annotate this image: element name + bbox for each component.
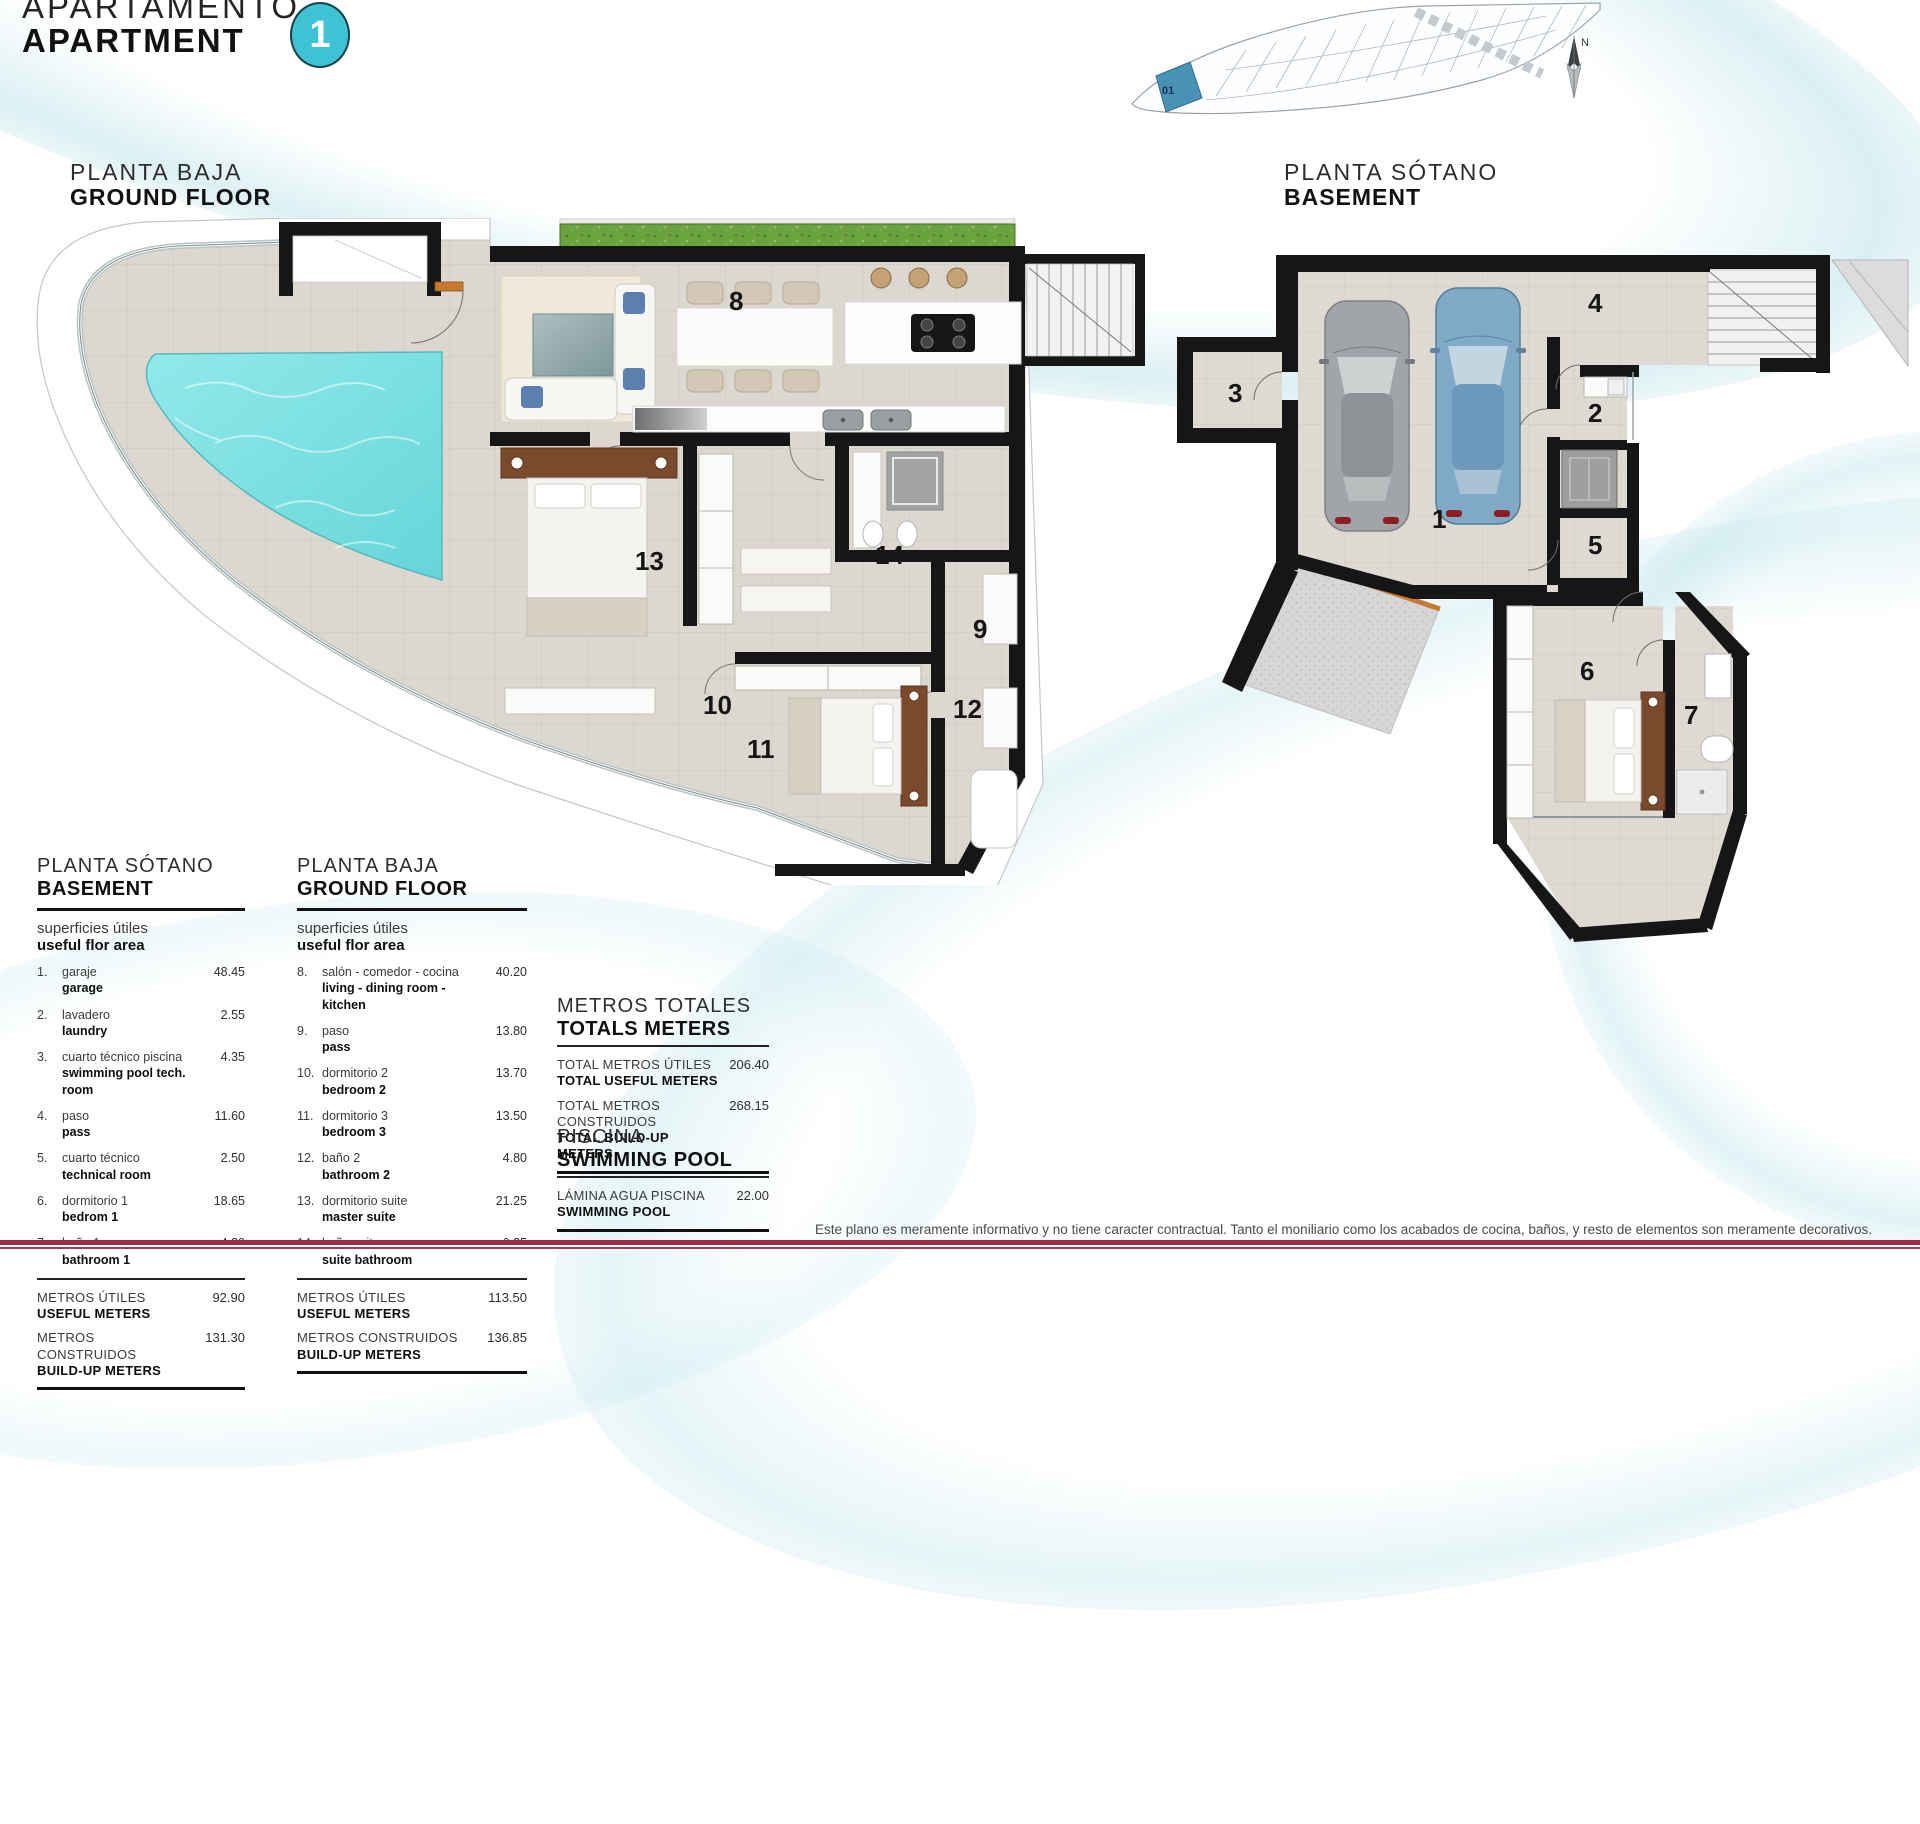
row-labels: baño 2 bathroom 2 <box>322 1150 481 1183</box>
counter-stools <box>871 268 967 288</box>
row-number: 2. <box>37 1007 62 1040</box>
bathtub <box>971 770 1017 848</box>
row-labels: cuarto técnico piscina swimming pool tec… <box>62 1049 199 1098</box>
row-labels: paso pass <box>322 1023 481 1056</box>
divider <box>37 1387 245 1390</box>
dining-furniture <box>677 282 833 392</box>
row-label-es: paso <box>62 1108 195 1124</box>
table-row: 12. baño 2 bathroom 2 4.80 <box>297 1150 527 1183</box>
row-label-en: living - dining room - kitchen <box>322 980 477 1013</box>
total-label-en: TOTAL USEFUL METERS <box>557 1073 721 1089</box>
room-number-7: 7 <box>1684 700 1698 730</box>
basement-table-title: PLANTA SÓTANO BASEMENT <box>37 855 245 901</box>
bed-blanket <box>789 698 821 794</box>
basement-label-es: PLANTA SÓTANO <box>1284 160 1498 185</box>
car-gray <box>1319 301 1415 531</box>
sink <box>1705 654 1731 698</box>
row-label-en: bedroom 2 <box>322 1082 477 1098</box>
grand-title-en: TOTALS METERS <box>557 1018 769 1041</box>
row-label-es: dormitorio suite <box>322 1193 477 1209</box>
room-number-5: 5 <box>1588 530 1602 560</box>
row-labels: dormitorio 3 bedroom 3 <box>322 1108 481 1141</box>
table-row: 6. dormitorio 1 bedrom 1 18.65 <box>37 1193 245 1226</box>
cooktop <box>911 314 975 352</box>
dining-table <box>677 308 833 366</box>
total-value: 92.90 <box>197 1290 245 1323</box>
row-value: 2.50 <box>199 1150 245 1183</box>
row-labels: lavadero laundry <box>62 1007 199 1040</box>
bed-headboard <box>901 686 927 806</box>
stairs <box>1027 264 1133 356</box>
room-number-11: 11 <box>747 734 775 764</box>
row-label-en: bedrom 1 <box>62 1209 195 1225</box>
row-label-es: paso <box>322 1023 477 1039</box>
row-number: 8. <box>297 964 322 1013</box>
total-label-es: METROS CONSTRUIDOS <box>297 1330 479 1346</box>
row-value: 11.60 <box>199 1108 245 1141</box>
basement-stairs <box>1708 260 1908 366</box>
total-value: 22.00 <box>721 1188 769 1221</box>
table-row: 13. dormitorio suite master suite 21.25 <box>297 1193 527 1226</box>
row-label-en: pass <box>62 1124 195 1140</box>
table-row: 9. paso pass 13.80 <box>297 1023 527 1056</box>
total-value: 113.50 <box>479 1290 527 1323</box>
total-label-en: BUILD-UP METERS <box>37 1363 197 1379</box>
total-labels: METROS CONSTRUIDOS BUILD-UP METERS <box>297 1330 479 1363</box>
room-number-6: 6 <box>1580 656 1594 686</box>
total-label-en: USEFUL METERS <box>297 1306 479 1322</box>
divider <box>297 1278 527 1280</box>
living-room-furniture <box>501 276 655 422</box>
row-label-en: swimming pool tech. room <box>62 1065 195 1098</box>
divider <box>557 1045 769 1047</box>
row-label-en: technical room <box>62 1167 195 1183</box>
row-value: 13.70 <box>481 1065 527 1098</box>
subtitle-es: superficies útiles <box>297 920 527 937</box>
subtitle-en: useful flor area <box>297 937 527 954</box>
total-row: METROS ÚTILES USEFUL METERS 92.90 <box>37 1290 245 1323</box>
ground-floor-label-es: PLANTA BAJA <box>70 160 271 185</box>
divider <box>37 1278 245 1280</box>
row-number: 9. <box>297 1023 322 1056</box>
total-labels: METROS CONSTRUIDOS BUILD-UP METERS <box>37 1330 197 1379</box>
row-label-en: bathroom 2 <box>322 1167 477 1183</box>
row-label-es: cuarto técnico piscina <box>62 1049 195 1065</box>
room-number-1: 1 <box>1432 504 1446 534</box>
row-number: 5. <box>37 1150 62 1183</box>
table-row: 11. dormitorio 3 bedroom 3 13.50 <box>297 1108 527 1141</box>
wardrobe <box>699 454 733 624</box>
pergola-strip <box>560 218 1015 224</box>
unit-number: 1 <box>309 14 330 57</box>
row-label-en: garage <box>62 980 195 996</box>
total-label-es: METROS ÚTILES <box>297 1290 479 1306</box>
row-value: 4.80 <box>481 1150 527 1183</box>
footer-rule <box>0 1240 1920 1249</box>
row-label-es: dormitorio 2 <box>322 1065 477 1081</box>
grand-totals-title: METROS TOTALES TOTALS METERS <box>557 995 769 1041</box>
row-number: 12. <box>297 1150 322 1183</box>
divider <box>557 1176 769 1178</box>
ground-table-title-en: GROUND FLOOR <box>297 878 527 901</box>
row-label-es: lavadero <box>62 1007 195 1023</box>
table-row: 3. cuarto técnico piscina swimming pool … <box>37 1049 245 1098</box>
basement-table-subtitle: superficies útiles useful flor area <box>37 920 245 954</box>
laundry-fixtures <box>1584 377 1627 397</box>
pillow <box>1614 708 1634 748</box>
north-arrow-icon: N <box>1567 36 1589 98</box>
title-spanish: APARTAMENTO <box>22 0 300 24</box>
basement-table-title-es: PLANTA SÓTANO <box>37 855 245 878</box>
row-value: 40.20 <box>481 964 527 1013</box>
row-number: 6. <box>37 1193 62 1226</box>
table-row: 8. salón - comedor - cocina living - din… <box>297 964 527 1013</box>
total-row: METROS ÚTILES USEFUL METERS 113.50 <box>297 1290 527 1323</box>
total-row: METROS CONSTRUIDOS BUILD-UP METERS 131.3… <box>37 1330 245 1379</box>
row-labels: garaje garage <box>62 964 199 997</box>
row-value: 13.50 <box>481 1108 527 1141</box>
pool-title-es: PISCINA <box>557 1126 769 1149</box>
row-labels: cuarto técnico technical room <box>62 1150 199 1183</box>
basement-area-table: PLANTA SÓTANO BASEMENT superficies útile… <box>37 855 245 1399</box>
row-label-es: baño 2 <box>322 1150 477 1166</box>
row-value: 21.25 <box>481 1193 527 1226</box>
svg-text:N: N <box>1581 37 1589 49</box>
row-label-en: suite bathroom <box>322 1252 477 1268</box>
counter-sideboard <box>635 408 707 430</box>
bed-blanket <box>527 598 647 636</box>
row-labels: salón - comedor - cocina living - dining… <box>322 964 481 1013</box>
pillow <box>873 704 893 742</box>
subtitle-en: useful flor area <box>37 937 245 954</box>
pillow <box>623 292 645 314</box>
basement-table-title-en: BASEMENT <box>37 878 245 901</box>
total-label-es: LÁMINA AGUA PISCINA <box>557 1188 721 1204</box>
pool-table-rows: LÁMINA AGUA PISCINA SWIMMING POOL 22.00 <box>557 1188 769 1221</box>
row-number: 11. <box>297 1108 322 1141</box>
row-label-en: pass <box>322 1039 477 1055</box>
row-label-en: bedroom 3 <box>322 1124 477 1140</box>
table-row: 5. cuarto técnico technical room 2.50 <box>37 1150 245 1183</box>
unit-number-badge: 1 <box>290 2 350 68</box>
room-number-4: 4 <box>1588 288 1603 318</box>
tv-panel <box>533 314 613 376</box>
row-labels: dormitorio 1 bedrom 1 <box>62 1193 199 1226</box>
total-label-es: TOTAL METROS ÚTILES <box>557 1057 721 1073</box>
row-value: 2.55 <box>199 1007 245 1040</box>
row-labels: dormitorio suite master suite <box>322 1193 481 1226</box>
total-value: 206.40 <box>721 1057 769 1090</box>
ground-floor-plan: 8 9 10 11 12 13 14 <box>35 218 1150 890</box>
divider <box>557 1229 769 1232</box>
shower <box>887 452 943 510</box>
total-labels: METROS ÚTILES USEFUL METERS <box>37 1290 197 1323</box>
car-blue <box>1430 288 1526 524</box>
row-number: 10. <box>297 1065 322 1098</box>
basement-table-totals: METROS ÚTILES USEFUL METERS 92.90 METROS… <box>37 1290 245 1379</box>
total-label-en: SWIMMING POOL <box>557 1204 721 1220</box>
disclaimer-text: Este plano es meramente informativo y no… <box>815 1222 1872 1237</box>
total-label-en: USEFUL METERS <box>37 1306 197 1322</box>
title-english: APARTMENT <box>22 24 300 58</box>
row-label-en: master suite <box>322 1209 477 1225</box>
ground-area-table: PLANTA BAJA GROUND FLOOR superficies úti… <box>297 855 527 1383</box>
divider <box>37 908 245 911</box>
row-label-es: dormitorio 3 <box>322 1108 477 1124</box>
basement-label: PLANTA SÓTANO BASEMENT <box>1284 160 1498 210</box>
divider <box>297 1371 527 1374</box>
table-row: 2. lavadero laundry 2.55 <box>37 1007 245 1040</box>
site-unit-label: 01 <box>1162 85 1174 97</box>
table-row: 10. dormitorio 2 bedroom 2 13.70 <box>297 1065 527 1098</box>
row-value: 4.35 <box>199 1049 245 1098</box>
table-row: 1. garaje garage 48.45 <box>37 964 245 997</box>
row-label-es: dormitorio 1 <box>62 1193 195 1209</box>
room-number-3: 3 <box>1228 378 1242 408</box>
divider <box>297 908 527 911</box>
dresser <box>505 688 655 714</box>
pillow <box>1614 754 1634 794</box>
row-label-en: laundry <box>62 1023 195 1039</box>
row-labels: paso pass <box>62 1108 199 1141</box>
row-number: 13. <box>297 1193 322 1226</box>
room-number-12: 12 <box>953 694 982 724</box>
pillow <box>521 386 543 408</box>
row-number: 4. <box>37 1108 62 1141</box>
room-number-14: 14 <box>875 540 904 570</box>
site-plan: 01 N <box>1126 0 1606 145</box>
ground-table-rows: 8. salón - comedor - cocina living - din… <box>297 964 527 1268</box>
ground-table-title: PLANTA BAJA GROUND FLOOR <box>297 855 527 901</box>
basement-table-rows: 1. garaje garage 48.45 2. lavadero laund… <box>37 964 245 1268</box>
total-row: TOTAL METROS ÚTILES TOTAL USEFUL METERS … <box>557 1057 769 1090</box>
row-label-en: bathroom 1 <box>62 1252 195 1268</box>
total-labels: METROS ÚTILES USEFUL METERS <box>297 1290 479 1323</box>
pool-title-en: SWIMMING POOL <box>557 1149 769 1172</box>
basement-plan: 1 2 3 4 5 6 7 <box>1160 240 1915 980</box>
bed-headboard <box>501 448 677 478</box>
total-labels: TOTAL METROS ÚTILES TOTAL USEFUL METERS <box>557 1057 721 1090</box>
pillow <box>873 748 893 786</box>
upper-terrace-triangle <box>1832 260 1908 366</box>
row-number: 1. <box>37 964 62 997</box>
room-number-10: 10 <box>703 690 732 720</box>
row-label-es: cuarto técnico <box>62 1150 195 1166</box>
total-value: 136.85 <box>479 1330 527 1363</box>
basement-label-en: BASEMENT <box>1284 185 1498 210</box>
room-number-8: 8 <box>729 286 743 316</box>
pillow <box>623 368 645 390</box>
elevator-shaft <box>1562 450 1617 508</box>
row-labels: dormitorio 2 bedroom 2 <box>322 1065 481 1098</box>
ground-table-subtitle: superficies útiles useful flor area <box>297 920 527 954</box>
row-label-es: garaje <box>62 964 195 980</box>
room-number-13: 13 <box>635 546 664 576</box>
ground-table-title-es: PLANTA BAJA <box>297 855 527 878</box>
row-label-es: salón - comedor - cocina <box>322 964 477 980</box>
pool-table-title: PISCINA SWIMMING POOL <box>557 1126 769 1172</box>
ground-floor-label-en: GROUND FLOOR <box>70 185 271 210</box>
subtitle-es: superficies útiles <box>37 920 245 937</box>
entry-porch <box>293 236 427 282</box>
total-label-es: METROS CONSTRUIDOS <box>37 1330 197 1363</box>
grand-title-es: METROS TOTALES <box>557 995 769 1018</box>
pool-table: PISCINA SWIMMING POOL LÁMINA AGUA PISCIN… <box>557 1126 769 1241</box>
bed-headboard <box>1641 692 1665 810</box>
total-labels: LÁMINA AGUA PISCINA SWIMMING POOL <box>557 1188 721 1221</box>
room-number-2: 2 <box>1588 398 1602 428</box>
page-title: APARTAMENTO APARTMENT <box>22 0 300 57</box>
room-number-9: 9 <box>973 614 987 644</box>
total-value: 131.30 <box>197 1330 245 1379</box>
row-value: 18.65 <box>199 1193 245 1226</box>
total-label-en: BUILD-UP METERS <box>297 1347 479 1363</box>
pillow <box>591 484 641 508</box>
ground-table-totals: METROS ÚTILES USEFUL METERS 113.50 METRO… <box>297 1290 527 1363</box>
bed-blanket <box>1555 700 1585 802</box>
hall-cabinet <box>983 574 1017 644</box>
ground-floor-label: PLANTA BAJA GROUND FLOOR <box>70 160 271 210</box>
planter-grass <box>560 224 1015 248</box>
vanity <box>983 688 1017 748</box>
total-row: LÁMINA AGUA PISCINA SWIMMING POOL 22.00 <box>557 1188 769 1221</box>
row-value: 13.80 <box>481 1023 527 1056</box>
total-row: METROS CONSTRUIDOS BUILD-UP METERS 136.8… <box>297 1330 527 1363</box>
row-value: 48.45 <box>199 964 245 997</box>
total-label-es: METROS ÚTILES <box>37 1290 197 1306</box>
pillow <box>535 484 585 508</box>
bathtub <box>1701 736 1733 762</box>
table-row: 4. paso pass 11.60 <box>37 1108 245 1141</box>
site-plan-drawing: 01 N <box>1126 0 1606 140</box>
row-number: 3. <box>37 1049 62 1098</box>
